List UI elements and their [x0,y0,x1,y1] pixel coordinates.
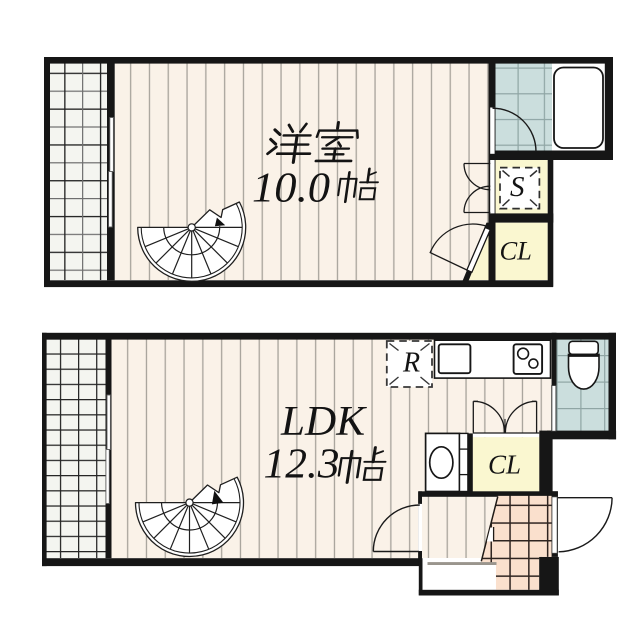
svg-text:12.3: 12.3 [264,442,340,488]
svg-text:R: R [402,348,420,379]
svg-text:S: S [510,171,525,203]
svg-text:CL: CL [488,449,521,480]
svg-text:CL: CL [500,236,532,266]
svg-text:LDK: LDK [280,399,367,445]
svg-text:10.0: 10.0 [252,165,330,211]
